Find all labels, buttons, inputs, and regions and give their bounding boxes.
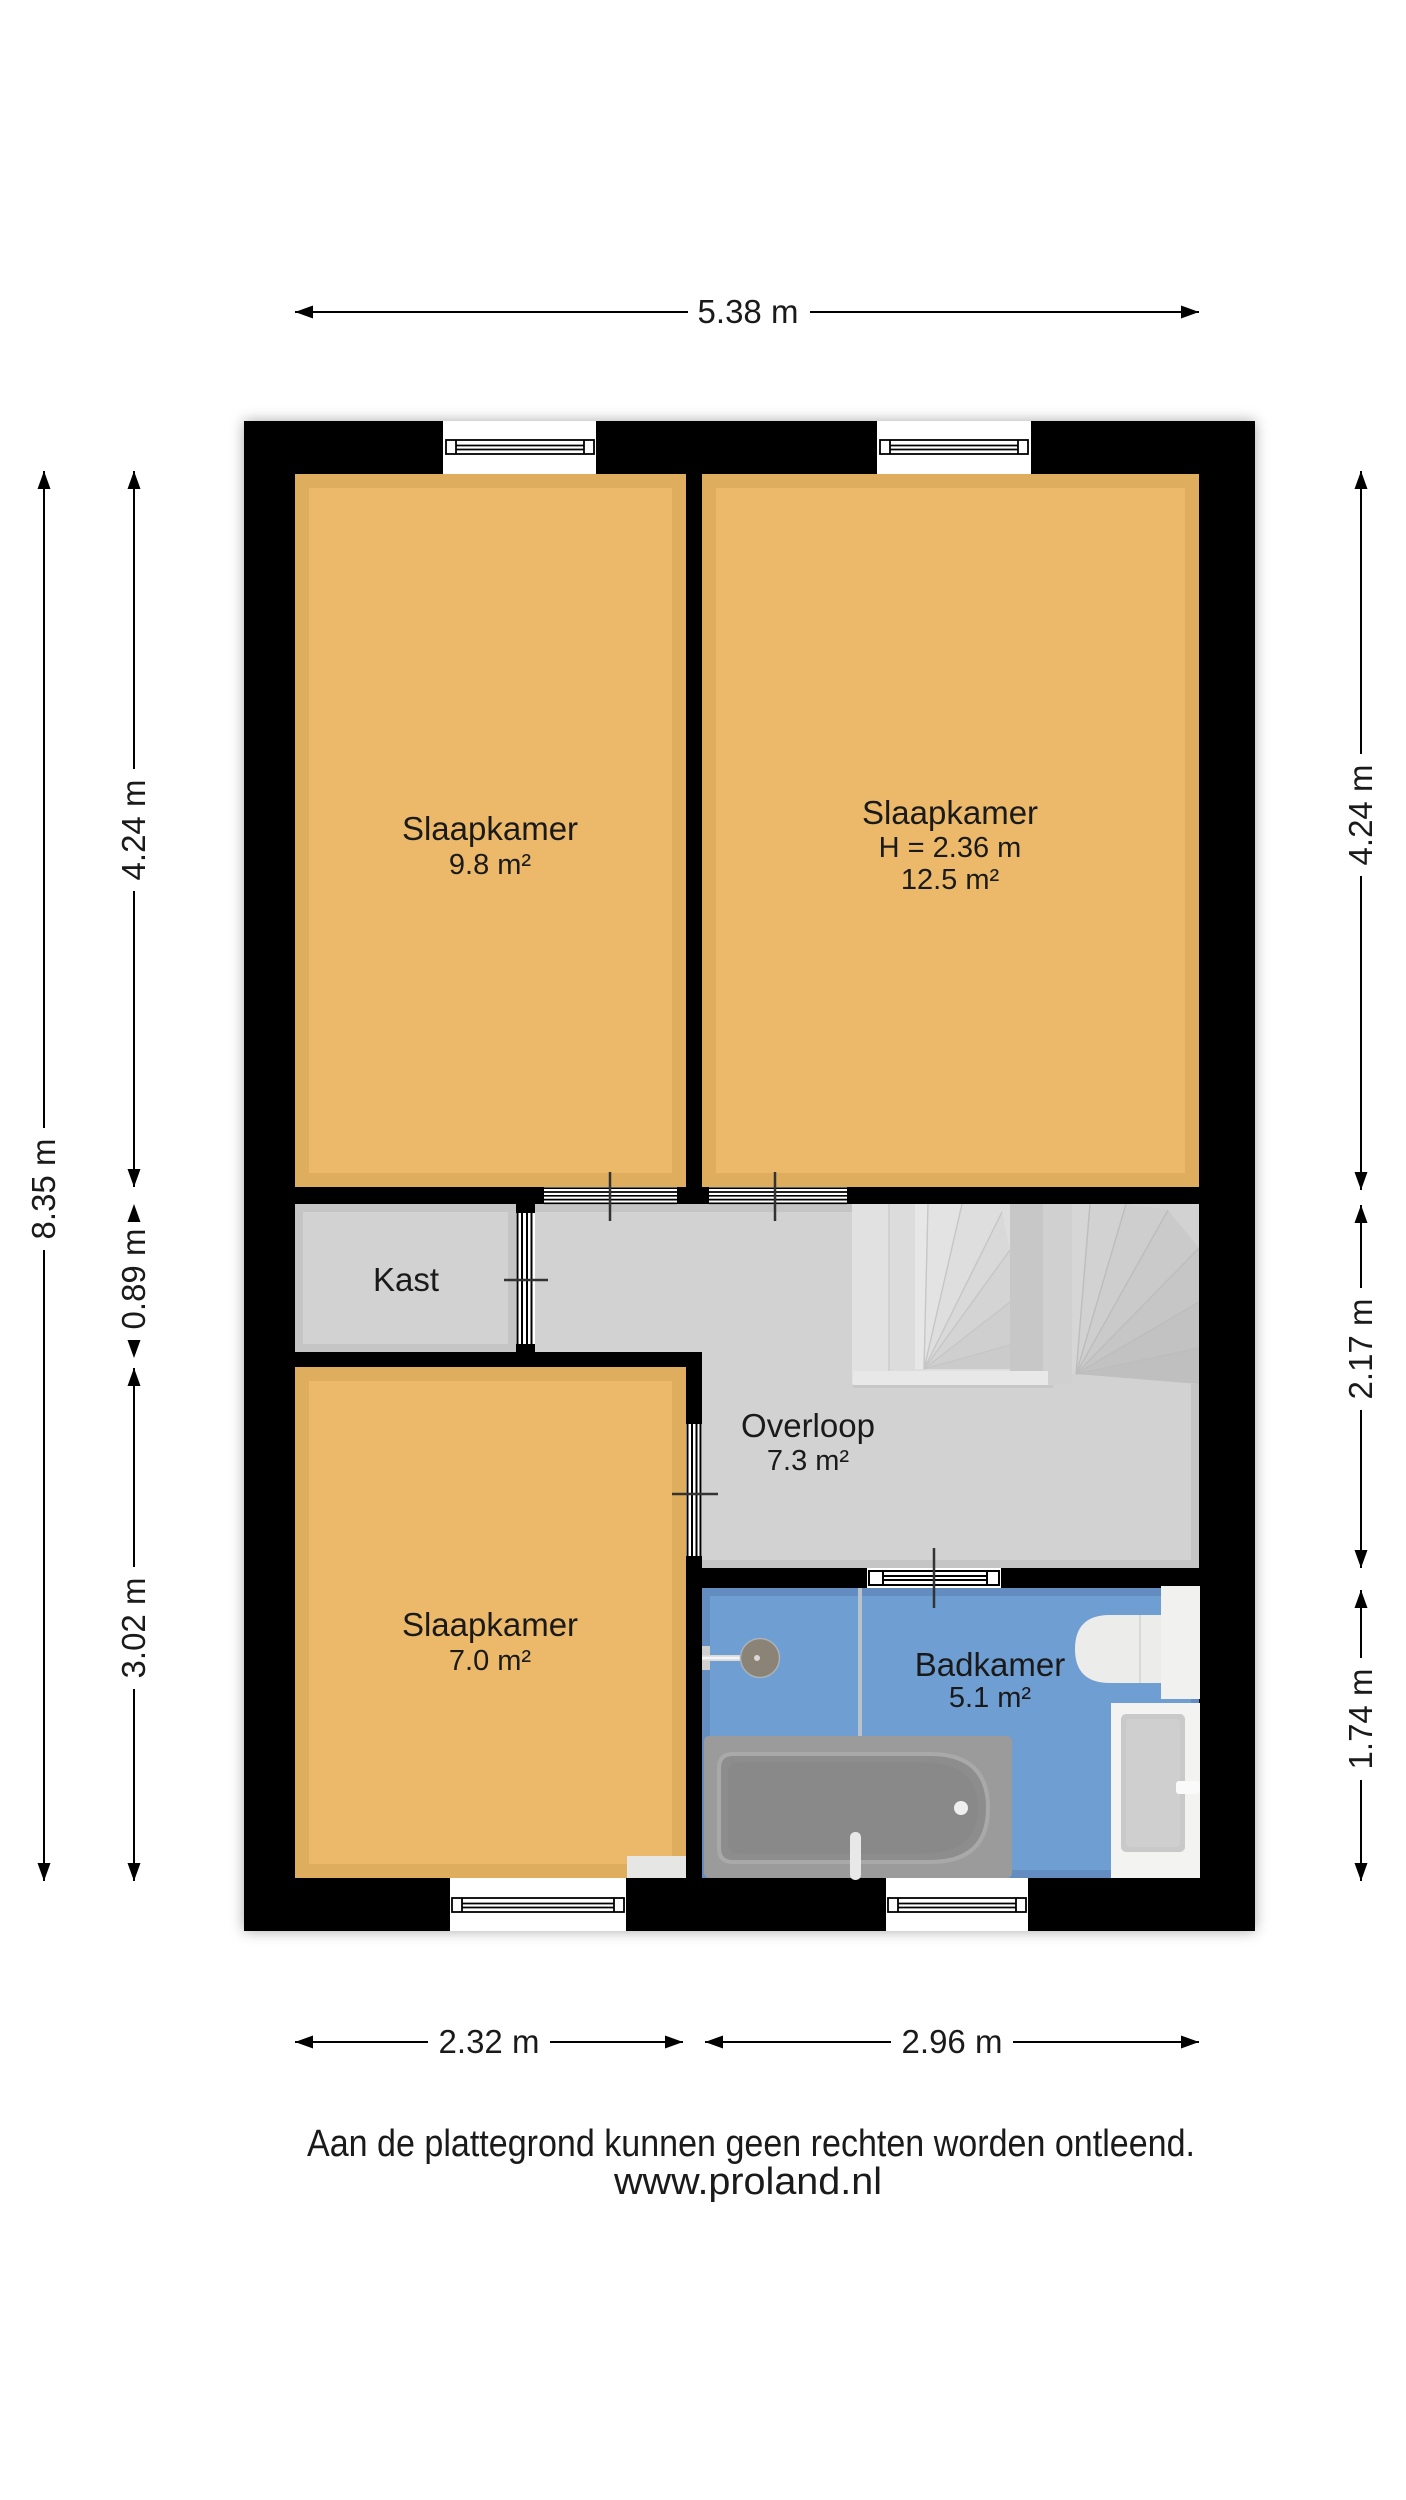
svg-text:Slaapkamer: Slaapkamer [402,810,578,847]
svg-text:2.32 m: 2.32 m [439,2023,540,2060]
svg-text:Overloop: Overloop [741,1407,875,1444]
svg-text:4.24 m: 4.24 m [1342,765,1379,866]
svg-text:5.38 m: 5.38 m [698,293,799,330]
svg-text:8.35 m: 8.35 m [25,1139,62,1240]
svg-text:5.1 m²: 5.1 m² [949,1682,1032,1714]
svg-text:Badkamer: Badkamer [915,1646,1065,1683]
svg-text:1.74 m: 1.74 m [1342,1669,1379,1770]
svg-text:Slaapkamer: Slaapkamer [862,794,1038,831]
svg-text:H = 2.36 m: H = 2.36 m [879,832,1022,864]
svg-text:4.24 m: 4.24 m [115,780,152,881]
svg-text:7.3 m²: 7.3 m² [767,1445,850,1477]
svg-text:0.89 m: 0.89 m [115,1229,152,1330]
svg-text:www.proland.nl: www.proland.nl [613,2161,882,2203]
svg-text:2.96 m: 2.96 m [902,2023,1003,2060]
svg-text:7.0 m²: 7.0 m² [449,1645,532,1677]
svg-text:Kast: Kast [373,1261,439,1298]
svg-text:9.8 m²: 9.8 m² [449,849,532,881]
svg-text:2.17 m: 2.17 m [1342,1299,1379,1400]
svg-text:12.5 m²: 12.5 m² [901,864,1000,896]
svg-text:3.02 m: 3.02 m [115,1578,152,1679]
svg-text:Slaapkamer: Slaapkamer [402,1606,578,1643]
svg-text:Aan de plattegrond kunnen geen: Aan de plattegrond kunnen geen rechten w… [307,2123,1195,2165]
